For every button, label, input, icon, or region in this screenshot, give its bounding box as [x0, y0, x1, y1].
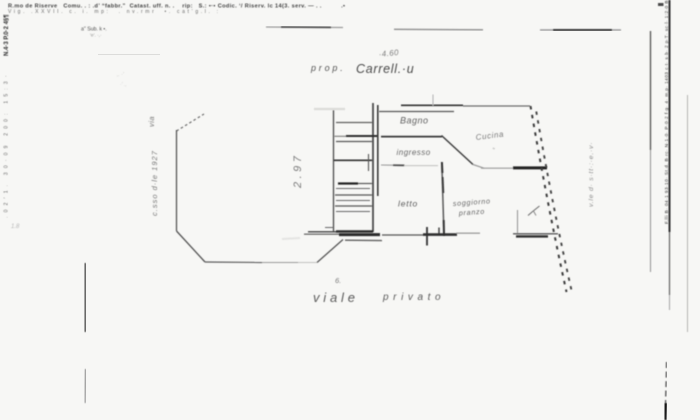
- svg-text:via: via: [147, 116, 156, 127]
- svg-text:.02′1. 30·09 200: 15:3·: .02′1. 30·09 200: 15:3·: [4, 71, 10, 218]
- svg-text:ingresso: ingresso: [397, 148, 431, 157]
- svg-text:2.97: 2.97: [292, 153, 304, 189]
- svg-text:c.sso d·le 1927: c.sso d·le 1927: [150, 150, 159, 216]
- svg-text:a′′ Sub. k •.: a′′ Sub. k •.: [81, 27, 107, 33]
- svg-text:letto: letto: [398, 199, 418, 209]
- svg-text:′e′. ·,·: ′e′. ·,·: [90, 33, 102, 39]
- svg-text:v.le d· s·tt·:·e.·v·: v.le d· s·tt·:·e.·v·: [588, 142, 595, 207]
- svg-text:N.4·3 P.0·2 4§¶: N.4·3 P.0·2 4§¶: [4, 14, 10, 56]
- svg-text:6.: 6.: [335, 276, 341, 285]
- svg-text:·′ .,: ·′ .,: [120, 82, 127, 88]
- svg-text:Carrell.·u: Carrell.·u: [356, 62, 414, 76]
- svg-text:1.8: 1.8: [11, 224, 20, 230]
- svg-text:prop.: prop.: [310, 63, 346, 73]
- svg-text:Bagno: Bagno: [400, 116, 429, 126]
- svg-text:privato: privato: [382, 292, 445, 303]
- svg-text:F.lli B· 04·1 93·10· St.d. B·r: F.lli B· 04·1 93·10· St.d. B·rc· N·1·0· …: [664, 0, 670, 224]
- svg-text:viale: viale: [313, 290, 359, 305]
- svg-text:,. ·′: ,. ·′: [117, 72, 125, 78]
- svg-text:pranzo: pranzo: [458, 207, 486, 218]
